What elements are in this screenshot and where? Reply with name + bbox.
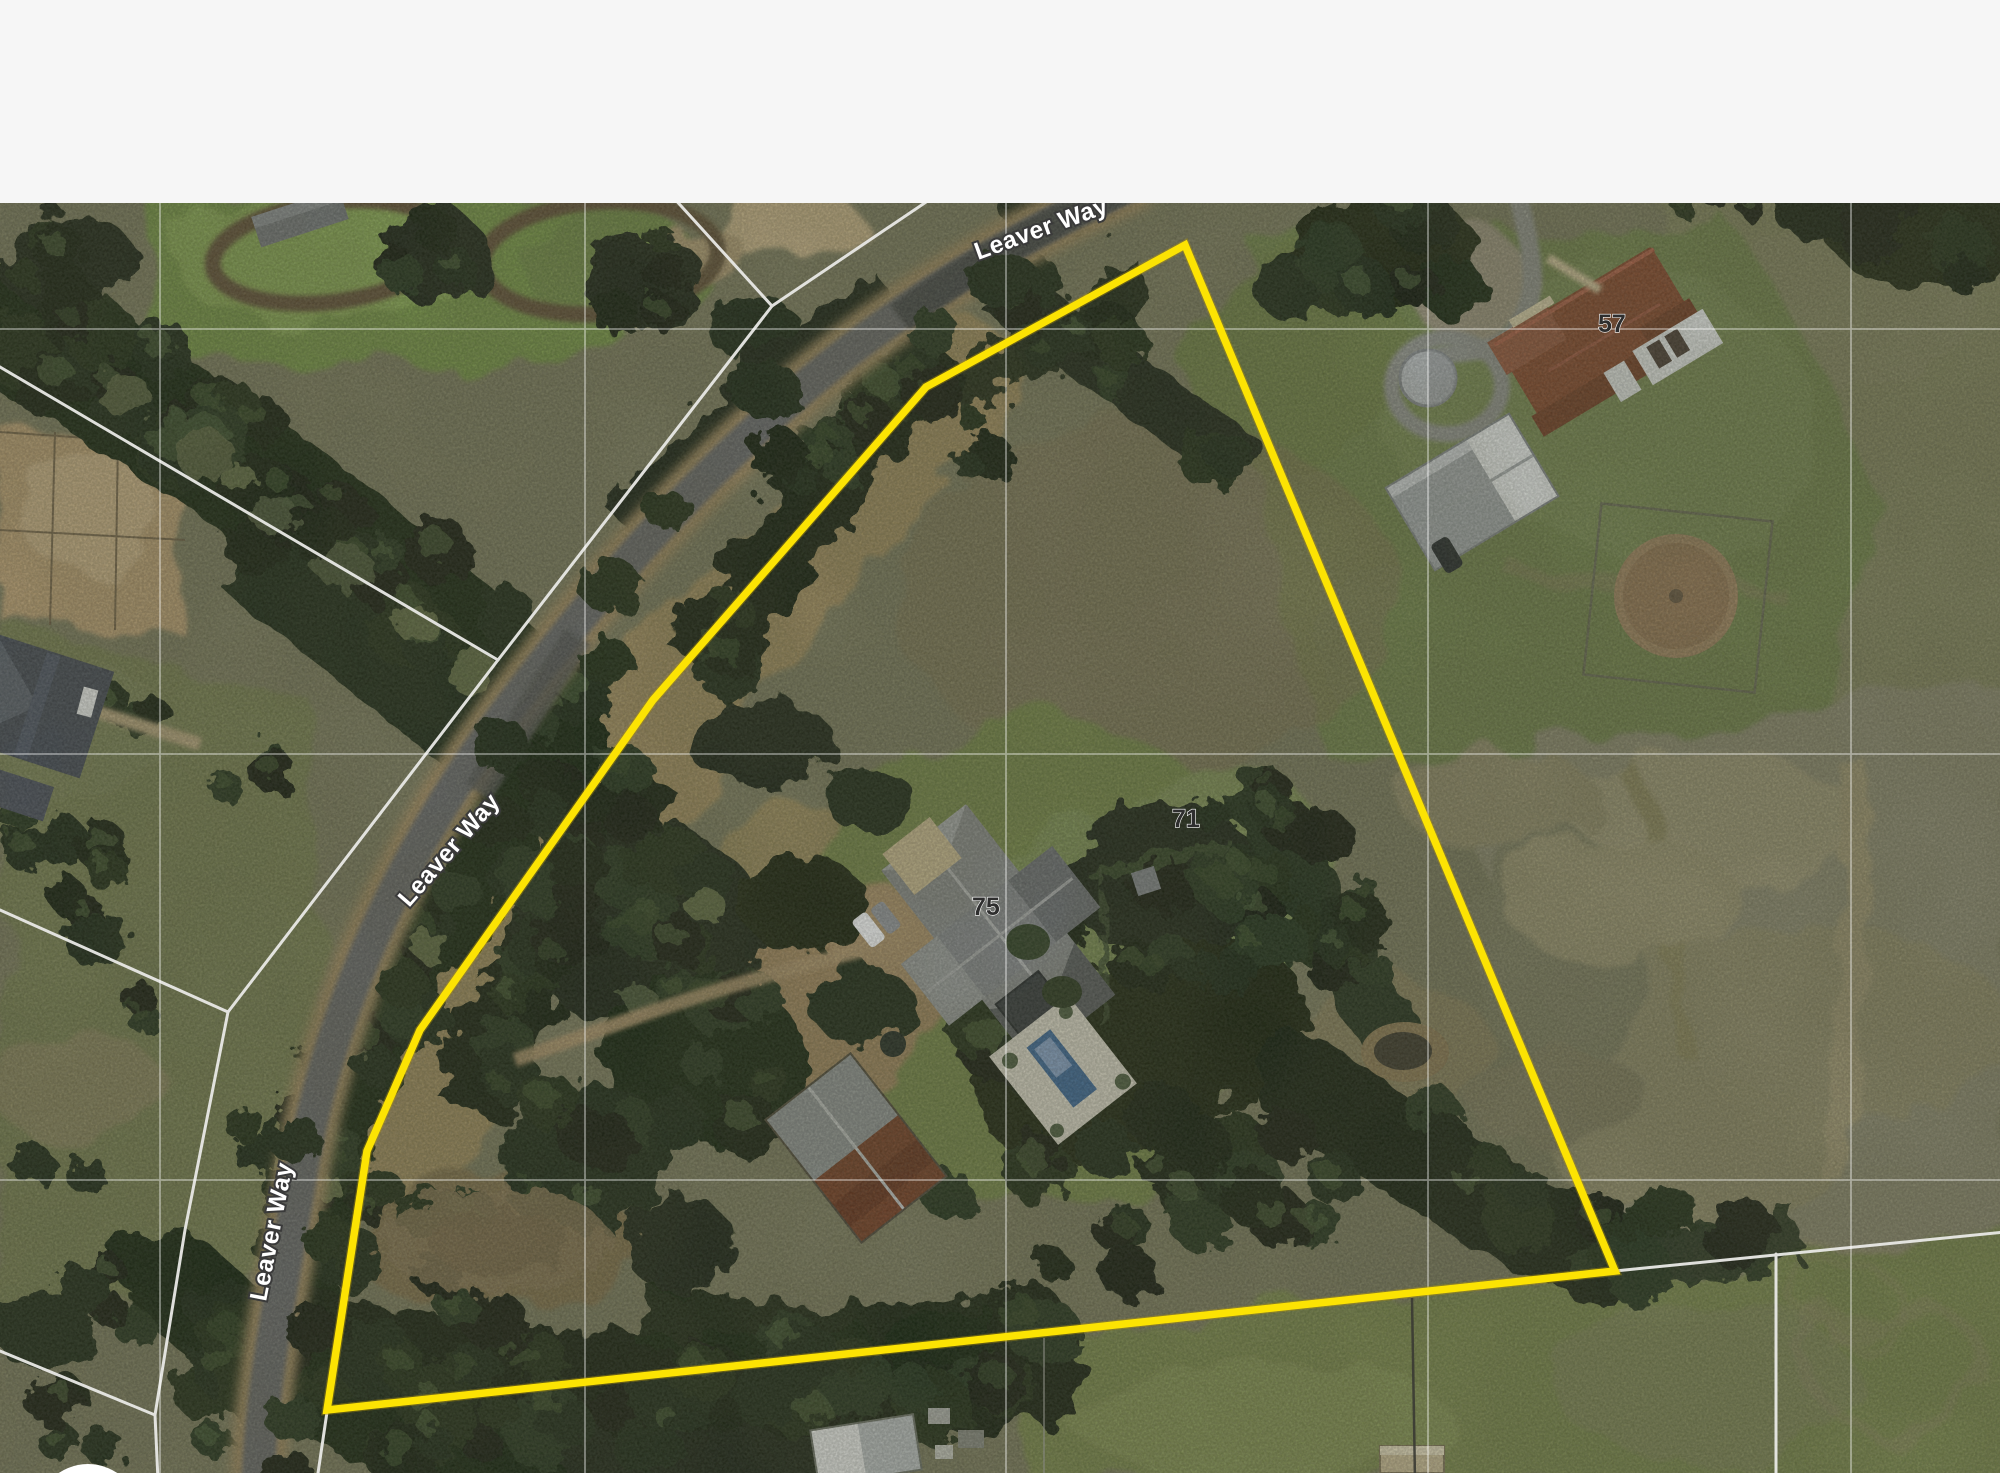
svg-text:75: 75 — [972, 893, 1000, 921]
svg-text:71: 71 — [1172, 805, 1200, 833]
svg-text:57: 57 — [1598, 310, 1626, 338]
